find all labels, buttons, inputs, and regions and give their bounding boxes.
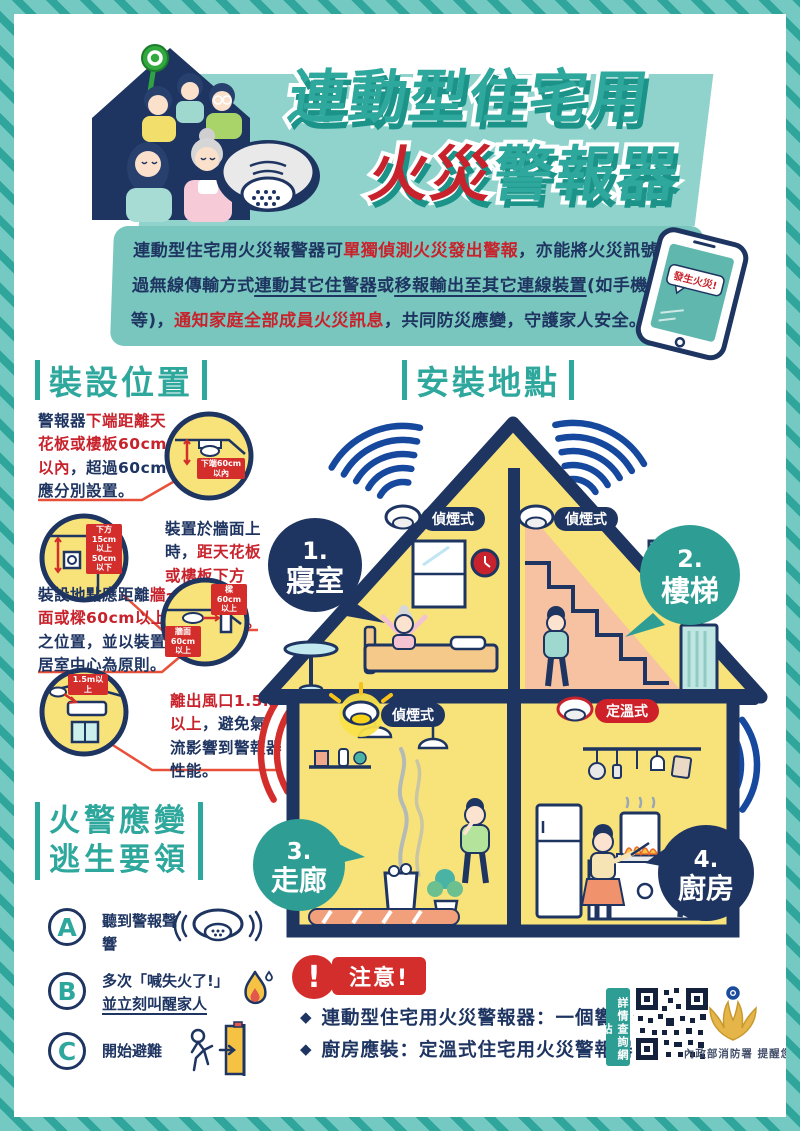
room-name-stairs: 樓梯 (661, 574, 719, 608)
escape-heading: 火警應變 逃生要領 (35, 802, 203, 880)
heading-bar (198, 802, 203, 880)
heading-bar (35, 360, 40, 400)
detector-stairs: 偵煙式 (519, 506, 618, 531)
exclamation-icon: ! (292, 955, 336, 999)
detector-tag-kitchen: 定溫式 (606, 703, 648, 720)
alarm-sounding-icon (172, 906, 264, 952)
guideline-2-badge: 下方15cm以上50cm以下 (86, 524, 122, 574)
escape-step-c-letter: C (48, 1032, 86, 1070)
room-number-1: 1. (302, 537, 328, 565)
notice-bullet-2: ◆ 廚房應裝：定溫式住宅用火災警報器 (300, 1036, 634, 1062)
intro-seg2: 單獨偵測火災發出警報 (343, 241, 519, 261)
guideline-1-pre: 警報器 (38, 412, 86, 430)
title-line1: 連動型住宅用 (224, 50, 716, 134)
escape-step-b-text: 多次「喊失火了!」 並立刻叫醒家人 (102, 970, 248, 1017)
intro-seg5: 或 (377, 276, 395, 296)
agency-credit: 內政部消防署 提醒您 (682, 1046, 786, 1061)
escape-step-a-letter: A (48, 908, 86, 946)
heading-bar (402, 360, 407, 400)
bedroom-window (413, 541, 465, 607)
install-position-heading: 裝設位置 (35, 356, 207, 404)
stairs-door (681, 625, 717, 693)
diamond-bullet-icon: ◆ (300, 1008, 312, 1026)
lower-center-wall (507, 703, 521, 927)
detector-tag-corridor: 偵煙式 (391, 707, 434, 724)
evacuate-exit-icon (182, 1020, 252, 1082)
smoke-detector-title-icon (212, 136, 324, 224)
heading-bar (569, 360, 574, 400)
detector-tag-stairs: 偵煙式 (564, 511, 607, 528)
house-cross-section: 偵煙式 偵煙式 偵煙式 定溫式 1. 寢室 (253, 413, 775, 950)
heading-bar (202, 360, 207, 400)
escape-title-line2: 逃生要領 (49, 841, 189, 880)
flame-icon (238, 968, 274, 1012)
detector-tag-bedroom: 偵煙式 (431, 511, 474, 528)
notice-bullet-2-text: 廚房應裝：定溫式住宅用火災警報器 (322, 1036, 634, 1062)
fridge (537, 805, 581, 917)
intro-seg9: ，共同防災應變，守護家人安全。 (384, 311, 647, 331)
notice-label: 注意! (332, 957, 426, 995)
room-number-3: 3. (287, 839, 312, 865)
guideline-4-icon: 1.5m以上 (38, 666, 130, 758)
escape-step-c-text: 開始避難 (102, 1040, 192, 1063)
upper-center-wall (508, 468, 520, 694)
intro-seg1: 連動型住宅用火災報警器可 (133, 241, 344, 261)
escape-title: 火警應變 逃生要領 (49, 802, 189, 880)
title-line2: 火災警報器 (324, 126, 726, 213)
guideline-3-icon: 樑60cm以上 牆面60cm以上 (159, 576, 251, 668)
install-location-heading: 安裝地點 (402, 356, 574, 404)
guideline-3-badge-beam: 樑60cm以上 (211, 584, 247, 615)
intro-seg4: 連動其它住警器 (254, 276, 377, 296)
intro-seg8: 通知家庭全部成員火災訊息 (174, 311, 385, 331)
poster-page: 連動型住宅用 火災警報器 連動型住宅用火災報警器可單獨偵測火災發出警報，亦能將火… (14, 14, 786, 1117)
title-line2-red: 火災 (364, 140, 498, 210)
title-line2-teal: 警報器 (488, 140, 684, 210)
room-number-4: 4. (694, 847, 719, 873)
wall-shelf (309, 749, 371, 767)
guideline-1-icon: 下端60cm以內 (163, 410, 255, 502)
install-position-title: 裝設位置 (49, 356, 193, 404)
escape-step-b-letter: B (48, 972, 86, 1010)
guideline-3-badge-wall: 牆面60cm以上 (165, 626, 201, 657)
install-location-title: 安裝地點 (416, 356, 560, 404)
intro-text: 連動型住宅用火災報警器可單獨偵測火災發出警報，亦能將火災訊號透過無線傳輸方式連動… (130, 234, 684, 339)
green-ok-sign (142, 45, 168, 71)
wall-clock (472, 550, 498, 576)
poster: 連動型住宅用 火災警報器 連動型住宅用火災報警器可單獨偵測火災發出警報，亦能將火… (0, 0, 800, 1131)
diamond-bullet-icon: ◆ (300, 1040, 312, 1058)
escape-step-b-line2: 並立刻叫醒家人 (102, 995, 207, 1013)
room-number-2: 2. (677, 545, 703, 573)
qr-label-tab: 詳情查詢網站 (606, 988, 630, 1066)
intro-box: 連動型住宅用火災報警器可單獨偵測火災發出警報，亦能將火災訊號透過無線傳輸方式連動… (110, 226, 704, 346)
detector-kitchen: 定溫式 (558, 698, 659, 723)
guideline-3-pre: 裝設地點應距離 (38, 586, 150, 604)
room-name-kitchen: 廚房 (678, 872, 734, 905)
guideline-1-text: 警報器下端距離天花板或樓板60cm以內，超過60cm應分別設置。 (38, 410, 180, 503)
guideline-1-badge: 下端60cm以內 (197, 458, 245, 479)
intro-seg6: 移報輸出至其它連線裝置 (394, 276, 587, 296)
escape-step-b-line1: 多次「喊失火了!」 (102, 972, 229, 990)
guideline-4-badge: 1.5m以上 (68, 674, 108, 695)
escape-title-line1: 火警應變 (49, 802, 189, 841)
guideline-3-text: 裝設地點應距離牆面或樑60cm以上之位置，並以裝置居室中心為原則。 (38, 584, 176, 677)
room-name-corridor: 走廊 (271, 864, 327, 897)
fire-agency-emblem (704, 984, 762, 1044)
room-name-bedroom: 寢室 (286, 564, 344, 598)
heading-bar (35, 802, 40, 880)
detector-bedroom: 偵煙式 (386, 506, 485, 531)
